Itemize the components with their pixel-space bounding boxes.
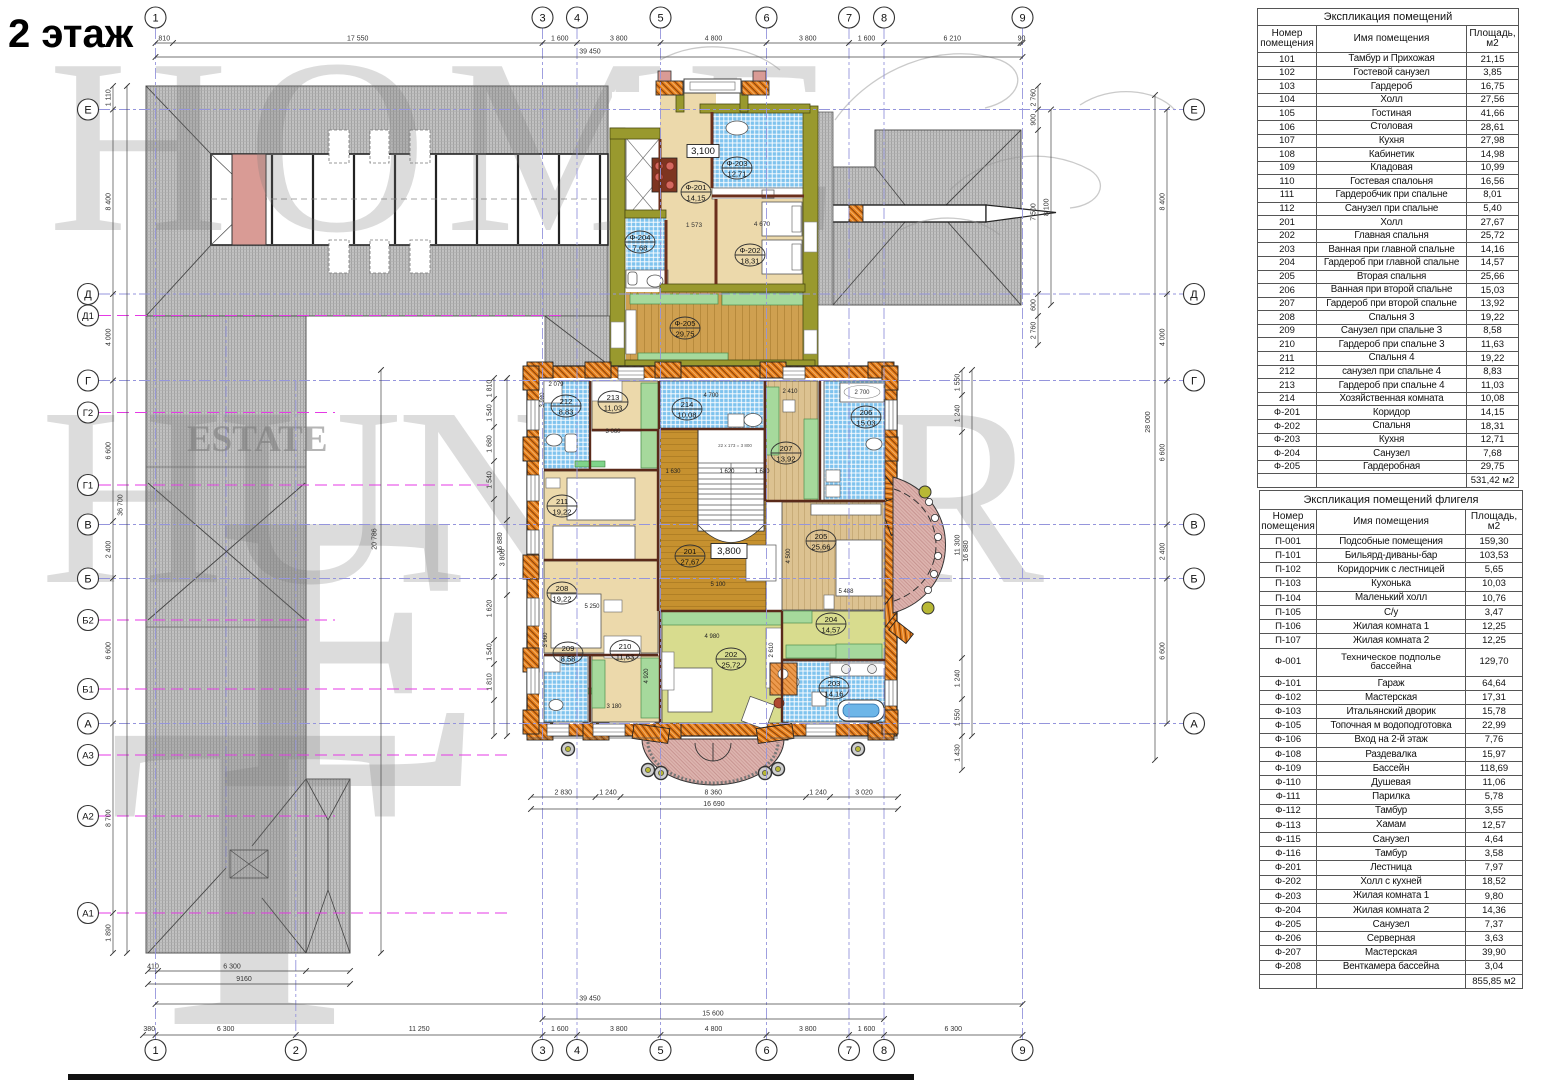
svg-text:12,71: 12,71 — [727, 170, 746, 179]
svg-text:201: 201 — [684, 547, 697, 556]
svg-text:1 550: 1 550 — [955, 374, 962, 392]
svg-text:810: 810 — [158, 36, 170, 43]
svg-text:600: 600 — [1031, 299, 1038, 311]
svg-text:204: 204 — [825, 615, 838, 624]
svg-text:2 410: 2 410 — [782, 389, 798, 395]
svg-text:2 760: 2 760 — [1031, 322, 1038, 340]
svg-text:25,72: 25,72 — [721, 661, 740, 670]
svg-text:Д: Д — [1190, 289, 1198, 301]
svg-text:1 600: 1 600 — [858, 1026, 876, 1033]
svg-text:3 960: 3 960 — [543, 632, 549, 648]
svg-text:4 000: 4 000 — [1160, 328, 1167, 346]
svg-text:6 600: 6 600 — [106, 442, 113, 460]
svg-text:3: 3 — [539, 12, 545, 24]
svg-text:Г: Г — [1191, 375, 1197, 387]
svg-text:T: T — [108, 633, 401, 1080]
svg-text:202: 202 — [725, 650, 738, 659]
svg-text:1 110: 1 110 — [106, 89, 113, 106]
svg-text:205: 205 — [815, 532, 828, 541]
svg-text:Б: Б — [84, 573, 91, 585]
svg-text:11,63: 11,63 — [616, 653, 634, 662]
svg-text:6 600: 6 600 — [1160, 444, 1167, 462]
svg-text:Б: Б — [1190, 573, 1197, 585]
svg-text:2: 2 — [293, 1045, 299, 1057]
svg-text:4 800: 4 800 — [705, 36, 723, 43]
svg-text:206: 206 — [860, 408, 873, 417]
svg-text:10,08: 10,08 — [677, 411, 696, 420]
svg-text:9160: 9160 — [236, 976, 252, 983]
svg-text:Г2: Г2 — [83, 408, 93, 419]
svg-text:19,22: 19,22 — [552, 508, 571, 517]
svg-text:13,92: 13,92 — [776, 455, 795, 464]
svg-text:1 620: 1 620 — [487, 600, 494, 618]
svg-text:208: 208 — [556, 584, 569, 593]
svg-text:210: 210 — [619, 642, 632, 651]
svg-text:8 360: 8 360 — [704, 790, 722, 797]
svg-text:4 500: 4 500 — [786, 548, 792, 564]
svg-text:1 680: 1 680 — [487, 435, 494, 453]
svg-text:90: 90 — [1018, 36, 1026, 43]
svg-text:8 100: 8 100 — [1044, 198, 1051, 216]
svg-text:6 210: 6 210 — [943, 36, 961, 43]
svg-text:В: В — [84, 519, 91, 531]
svg-text:Ф-201: Ф-201 — [686, 183, 707, 192]
svg-text:14,57: 14,57 — [821, 626, 840, 635]
svg-text:6 300: 6 300 — [944, 1026, 962, 1033]
svg-text:3 180: 3 180 — [606, 704, 622, 710]
svg-text:8: 8 — [881, 1045, 887, 1057]
svg-text:15 600: 15 600 — [702, 1011, 724, 1018]
svg-text:8 400: 8 400 — [1160, 193, 1167, 211]
svg-text:6 300: 6 300 — [217, 1026, 235, 1033]
svg-text:1 540: 1 540 — [487, 471, 494, 489]
svg-text:1 630: 1 630 — [665, 469, 681, 475]
svg-text:1 540: 1 540 — [487, 643, 494, 661]
svg-text:18,31: 18,31 — [740, 257, 759, 266]
svg-text:16 880: 16 880 — [497, 532, 504, 554]
svg-text:ESTATE: ESTATE — [187, 419, 328, 460]
svg-text:6 300: 6 300 — [223, 964, 241, 971]
svg-text:3,800: 3,800 — [717, 546, 741, 557]
svg-text:19,22: 19,22 — [552, 595, 571, 604]
svg-text:Д1: Д1 — [82, 311, 94, 322]
svg-text:2 400: 2 400 — [1160, 543, 1167, 561]
svg-text:1 573: 1 573 — [686, 222, 703, 229]
svg-text:1 600: 1 600 — [551, 36, 569, 43]
svg-text:Е: Е — [1190, 104, 1197, 116]
svg-text:27,67: 27,67 — [680, 558, 699, 567]
svg-text:1: 1 — [152, 12, 158, 24]
svg-text:4 920: 4 920 — [644, 668, 650, 684]
svg-text:11,03: 11,03 — [604, 404, 622, 413]
svg-text:410: 410 — [147, 964, 159, 971]
svg-text:17 550: 17 550 — [347, 36, 369, 43]
svg-text:9: 9 — [1019, 1045, 1025, 1057]
svg-text:4: 4 — [574, 1045, 580, 1057]
svg-text:16 690: 16 690 — [703, 801, 725, 808]
svg-text:3 800: 3 800 — [799, 36, 817, 43]
svg-text:8 700: 8 700 — [106, 809, 113, 827]
svg-text:212: 212 — [560, 397, 573, 406]
svg-text:8,83: 8,83 — [559, 408, 574, 417]
svg-text:5 100: 5 100 — [710, 582, 726, 588]
svg-text:29,75: 29,75 — [675, 330, 694, 339]
svg-text:5 488: 5 488 — [838, 589, 854, 595]
svg-text:7,68: 7,68 — [633, 244, 648, 253]
svg-text:Г1: Г1 — [83, 480, 93, 491]
svg-text:3,100: 3,100 — [691, 146, 715, 157]
svg-text:В: В — [1190, 519, 1197, 531]
svg-text:207: 207 — [780, 444, 793, 453]
svg-text:6 600: 6 600 — [106, 642, 113, 660]
svg-text:3: 3 — [539, 1045, 545, 1057]
svg-text:4 700: 4 700 — [703, 393, 719, 399]
svg-text:1 240: 1 240 — [955, 405, 962, 423]
svg-text:39 450: 39 450 — [579, 996, 601, 1003]
svg-text:8 400: 8 400 — [106, 193, 113, 211]
svg-text:36 700: 36 700 — [118, 494, 125, 516]
svg-text:8: 8 — [881, 12, 887, 24]
svg-text:11 300: 11 300 — [955, 534, 962, 555]
svg-text:380: 380 — [143, 1026, 155, 1033]
svg-text:9: 9 — [1019, 12, 1025, 24]
svg-text:214: 214 — [681, 400, 694, 409]
svg-text:Е: Е — [84, 104, 91, 116]
svg-text:1 600: 1 600 — [858, 36, 876, 43]
svg-text:8,58: 8,58 — [561, 655, 576, 664]
svg-text:Г: Г — [85, 375, 91, 387]
svg-text:2 700: 2 700 — [854, 390, 870, 396]
svg-text:2 400: 2 400 — [106, 541, 113, 559]
svg-text:4 000: 4 000 — [106, 328, 113, 346]
svg-text:5 250: 5 250 — [584, 604, 600, 610]
svg-text:7 500: 7 500 — [1031, 203, 1038, 221]
svg-text:15,03: 15,03 — [856, 419, 875, 428]
svg-text:11 250: 11 250 — [409, 1026, 430, 1033]
svg-text:1 540: 1 540 — [487, 404, 494, 422]
svg-text:А3: А3 — [82, 750, 94, 761]
svg-text:1: 1 — [152, 1045, 158, 1057]
svg-text:Ф-203: Ф-203 — [727, 159, 748, 168]
svg-text:22 x 173 = 3 800: 22 x 173 = 3 800 — [718, 443, 752, 448]
svg-text:6: 6 — [763, 12, 769, 24]
svg-text:14,16: 14,16 — [824, 690, 843, 699]
svg-text:3 980: 3 980 — [540, 392, 546, 408]
svg-text:1 240: 1 240 — [599, 790, 617, 797]
svg-text:1 680: 1 680 — [754, 469, 770, 475]
svg-text:1 430: 1 430 — [955, 744, 962, 762]
svg-text:1 240: 1 240 — [809, 790, 827, 797]
svg-text:5: 5 — [657, 12, 663, 24]
svg-text:4 980: 4 980 — [704, 634, 720, 640]
svg-text:3 020: 3 020 — [855, 790, 873, 797]
svg-text:А2: А2 — [82, 811, 94, 822]
svg-text:2 760: 2 760 — [1031, 89, 1038, 107]
svg-text:1 620: 1 620 — [719, 469, 735, 475]
svg-text:2 079: 2 079 — [548, 382, 564, 388]
svg-text:4 670: 4 670 — [754, 221, 771, 228]
svg-text:4: 4 — [574, 12, 580, 24]
svg-text:211: 211 — [556, 497, 568, 506]
svg-text:Ф-205: Ф-205 — [675, 319, 696, 328]
svg-text:203: 203 — [828, 679, 841, 688]
svg-text:Б2: Б2 — [82, 615, 94, 626]
svg-text:39 450: 39 450 — [579, 49, 601, 56]
svg-text:6 600: 6 600 — [1160, 642, 1167, 660]
svg-text:1 550: 1 550 — [955, 709, 962, 727]
svg-text:25,66: 25,66 — [811, 543, 830, 552]
svg-text:213: 213 — [607, 393, 620, 402]
svg-text:1 240: 1 240 — [955, 670, 962, 688]
svg-text:900: 900 — [1031, 114, 1038, 126]
svg-text:Ф-202: Ф-202 — [740, 246, 761, 255]
svg-text:20 786: 20 786 — [372, 528, 379, 550]
svg-text:1 810: 1 810 — [487, 673, 494, 691]
svg-text:2 610: 2 610 — [769, 642, 775, 658]
svg-text:1 600: 1 600 — [551, 1026, 569, 1033]
svg-text:1 810: 1 810 — [487, 380, 494, 398]
svg-text:28 000: 28 000 — [1145, 411, 1152, 433]
svg-text:3 800: 3 800 — [610, 1026, 628, 1033]
svg-text:7: 7 — [846, 12, 852, 24]
svg-text:5: 5 — [657, 1045, 663, 1057]
svg-text:Д: Д — [84, 289, 92, 301]
svg-text:209: 209 — [562, 644, 575, 653]
svg-text:3 800: 3 800 — [799, 1026, 817, 1033]
svg-text:6: 6 — [763, 1045, 769, 1057]
svg-text:1 890: 1 890 — [106, 924, 113, 942]
svg-text:Ф-204: Ф-204 — [630, 233, 651, 242]
svg-text:А1: А1 — [82, 908, 94, 919]
svg-text:16 880: 16 880 — [963, 540, 970, 562]
svg-text:4 800: 4 800 — [705, 1026, 723, 1033]
svg-text:Б1: Б1 — [82, 684, 94, 695]
svg-text:3 060: 3 060 — [605, 429, 621, 435]
svg-text:7: 7 — [846, 1045, 852, 1057]
svg-text:А: А — [84, 718, 92, 730]
svg-text:А: А — [1190, 718, 1198, 730]
svg-text:14,15: 14,15 — [686, 194, 705, 203]
svg-text:2 830: 2 830 — [554, 790, 572, 797]
svg-text:3 800: 3 800 — [610, 36, 628, 43]
